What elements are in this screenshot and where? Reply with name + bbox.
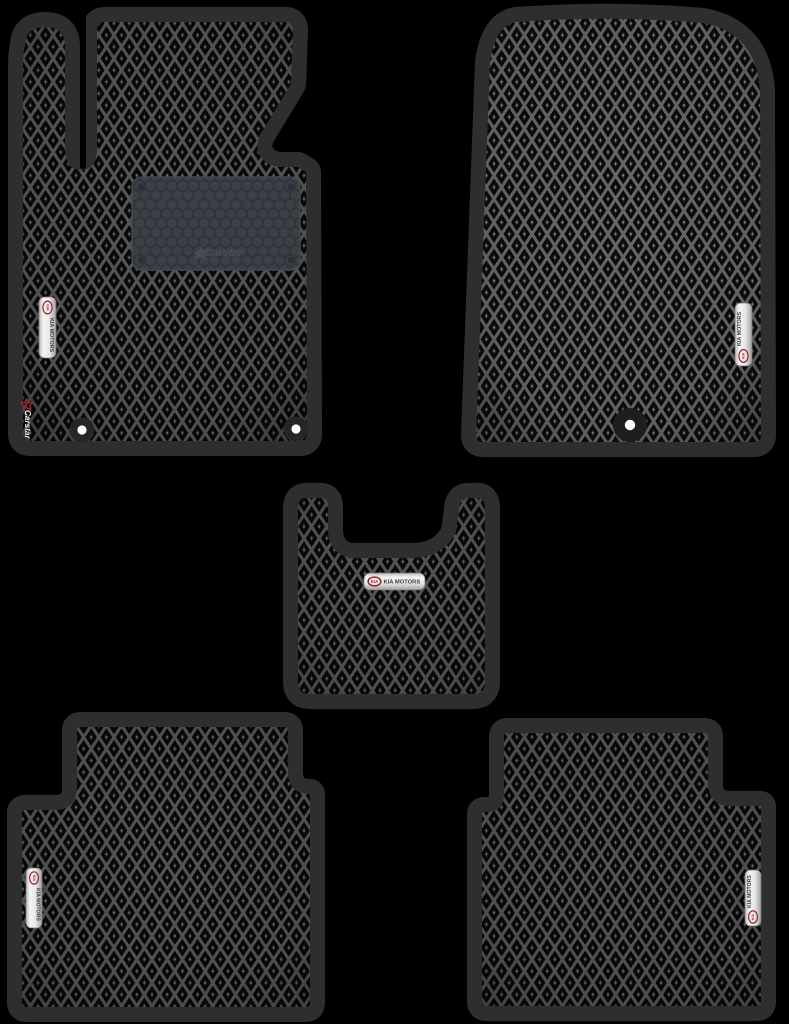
svg-text:KIA MOTORS: KIA MOTORS	[48, 318, 54, 353]
svg-text:Carstar: Carstar	[204, 247, 243, 259]
svg-text:KIA MOTORS: KIA MOTORS	[737, 311, 743, 346]
svg-text:KIA: KIA	[32, 875, 36, 882]
svg-text:KIA: KIA	[751, 914, 755, 921]
svg-text:KIA MOTORS: KIA MOTORS	[34, 888, 40, 921]
svg-text:KIA MOTORS: KIA MOTORS	[747, 875, 753, 908]
svg-text:KIA: KIA	[46, 304, 50, 311]
svg-text:KIA: KIA	[371, 579, 379, 584]
svg-text:Carstar: Carstar	[23, 410, 32, 439]
svg-text:KIA: KIA	[741, 353, 745, 360]
svg-text:KIA MOTORS: KIA MOTORS	[384, 580, 421, 586]
